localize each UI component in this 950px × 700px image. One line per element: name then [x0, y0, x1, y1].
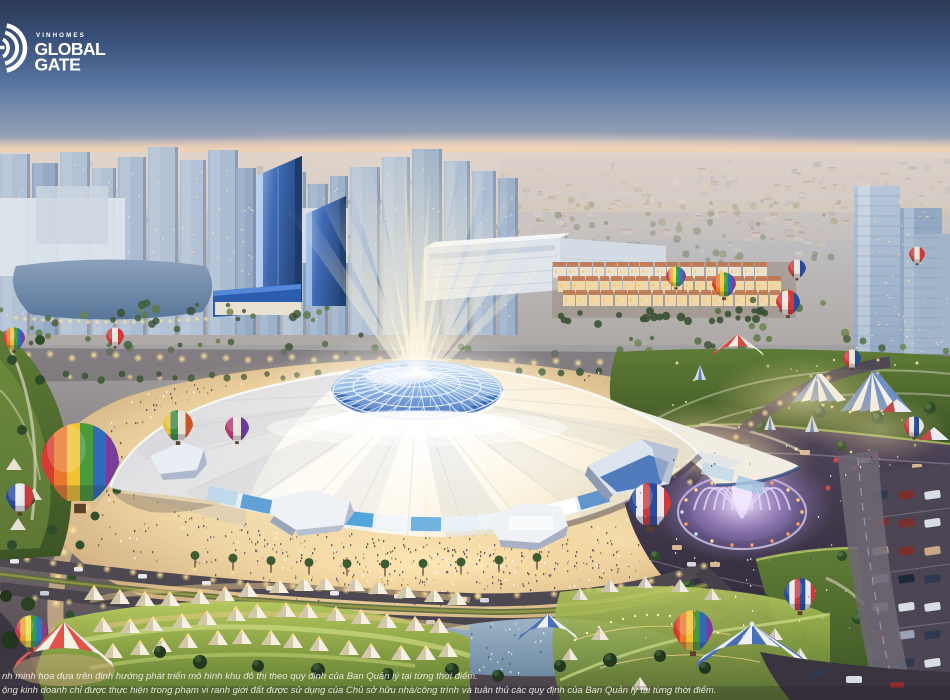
- svg-text:GATE: GATE: [35, 55, 82, 75]
- svg-text:ộng kinh doanh chỉ được thực h: ộng kinh doanh chỉ được thực hiện trong …: [2, 685, 716, 696]
- svg-text:nh minh họa dựa trên định hướn: nh minh họa dựa trên định hướng phát tri…: [2, 671, 478, 682]
